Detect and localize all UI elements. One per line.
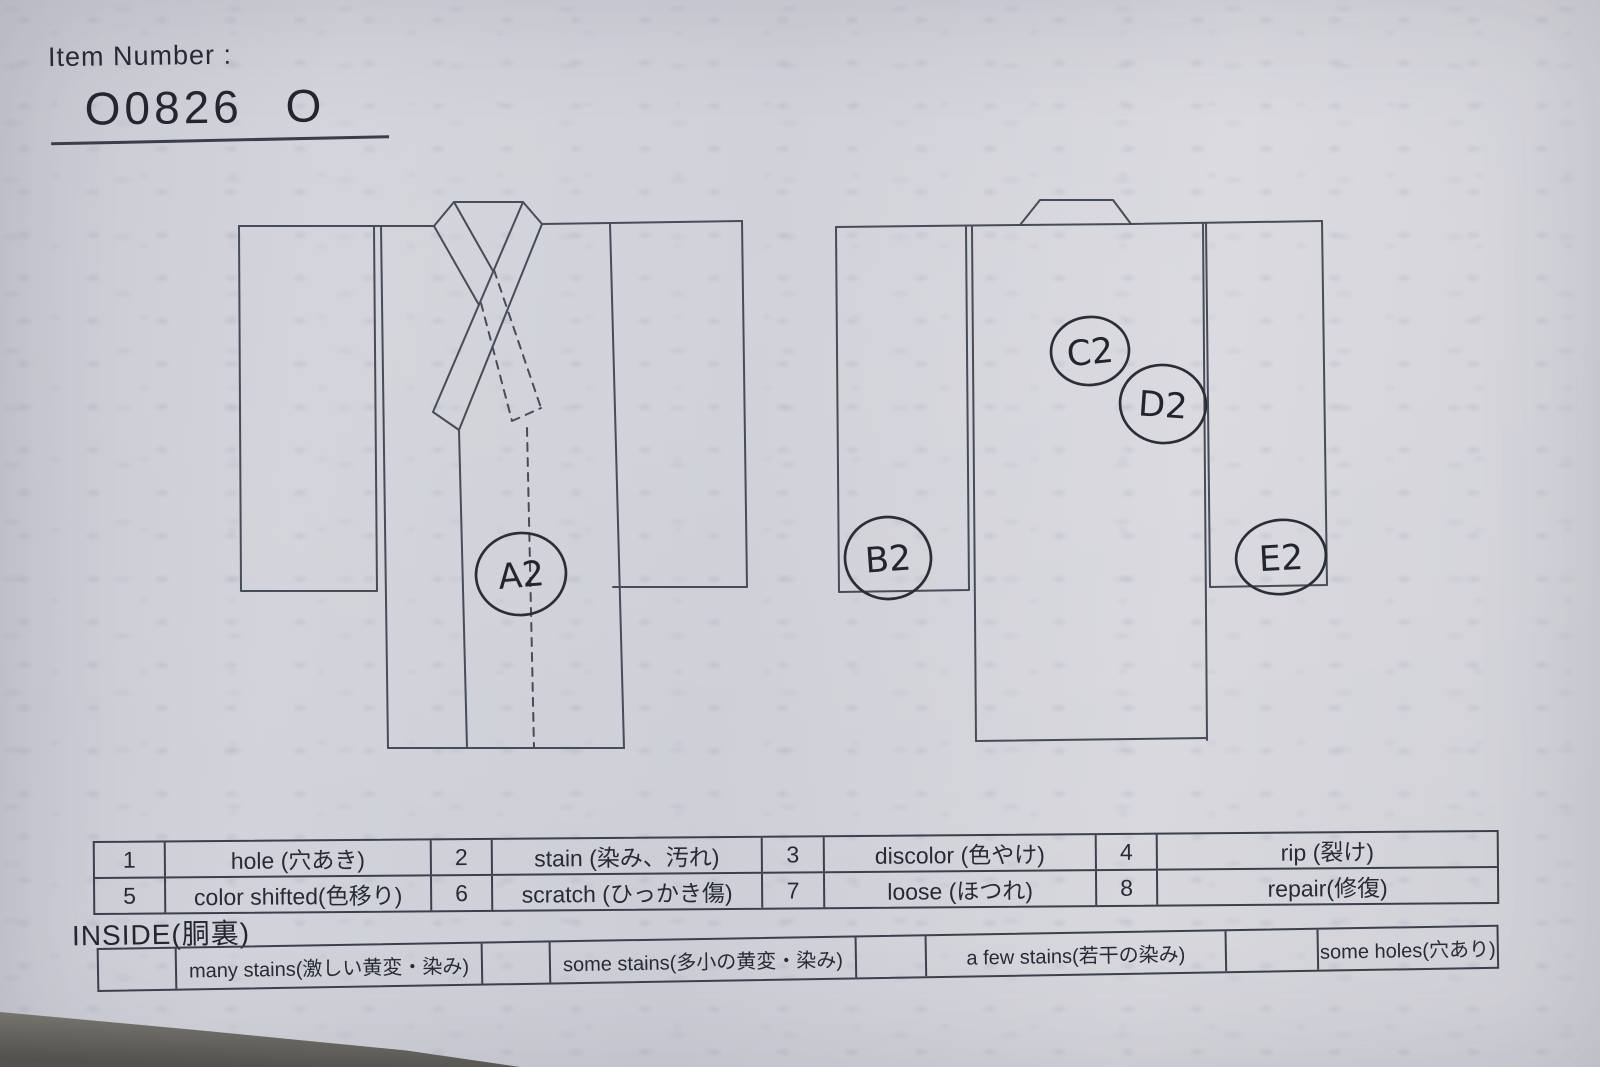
annotation-a2-text: A2 (496, 554, 546, 598)
legend-label-6: scratch (ひっかき傷) (491, 874, 761, 910)
annotation-b2: B2 (842, 514, 934, 602)
legend-code-8: 8 (1095, 871, 1156, 905)
annotation-e2-text: E2 (1258, 538, 1304, 580)
annotation-d2-text: D2 (1137, 384, 1189, 427)
legend-code-1: 1 (95, 842, 164, 877)
kimono-back-diagram (836, 200, 1327, 741)
legend-code-4: 4 (1095, 835, 1156, 869)
legend-label-3: discolor (色やけ) (823, 835, 1095, 871)
legend-label-2: stain (染み、汚れ) (491, 838, 761, 874)
legend-label-4: rip (裂け) (1156, 832, 1497, 869)
legend-code-7: 7 (761, 873, 823, 907)
legend-code-2: 2 (430, 840, 491, 874)
legend-label-7: loose (ほつれ) (823, 871, 1095, 907)
inside-option-4: some holes(穴あり) (1317, 927, 1498, 970)
inspection-sheet-photo: Item Number : O0826 O (0, 0, 1600, 1067)
inside-checkbox-4 (1225, 930, 1318, 972)
inside-checkbox-2 (481, 943, 550, 984)
annotation-d2: D2 (1116, 361, 1210, 448)
legend-code-6: 6 (430, 876, 491, 910)
annotation-b2-text: B2 (864, 538, 913, 581)
inside-option-2: some stains(多小の黄変・染み) (549, 937, 856, 982)
legend-code-3: 3 (761, 837, 823, 871)
legend-table: 1 hole (穴あき) 2 stain (染み、汚れ) 3 discolor … (93, 830, 1500, 915)
annotation-c2: C2 (1048, 314, 1132, 389)
inside-checkbox-3 (855, 936, 926, 977)
inside-option-1: many stains(激しい黄変・染み) (175, 944, 482, 989)
kimono-front-diagram (239, 202, 747, 748)
legend-label-8: repair(修復) (1156, 868, 1497, 905)
legend-code-5: 5 (95, 878, 164, 913)
annotation-a2: A2 (472, 529, 570, 620)
inside-checkbox-1 (99, 949, 176, 990)
annotation-c2-text: C2 (1065, 331, 1116, 376)
legend-label-1: hole (穴あき) (164, 840, 430, 876)
legend-label-5: color shifted(色移り) (164, 876, 430, 912)
inside-option-3: a few stains(若干の染み) (925, 931, 1226, 976)
